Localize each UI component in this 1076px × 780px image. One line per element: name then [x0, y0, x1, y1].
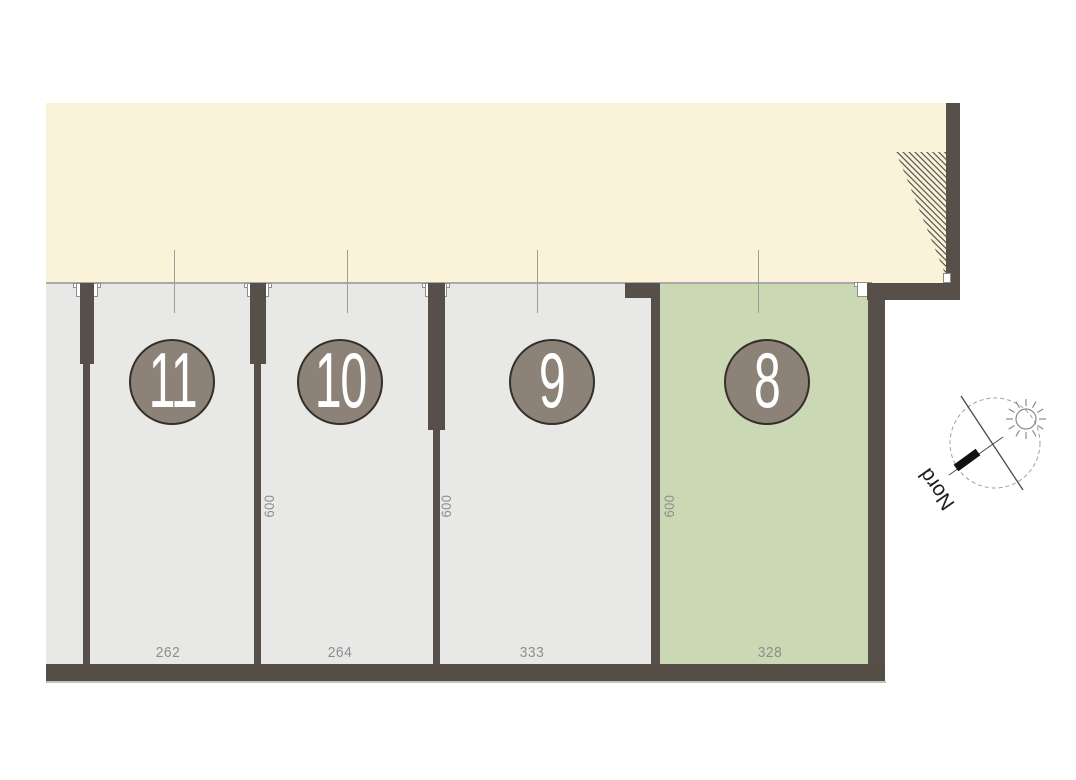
divider-wall-12-11	[83, 364, 90, 664]
divider-wall-11-10	[254, 364, 261, 664]
plot-depth-dimension-9: 600	[439, 486, 453, 526]
plot-number-badge-9[interactable]: 9	[509, 339, 595, 425]
plot-8-right-wall	[868, 299, 885, 664]
corridor-area	[46, 103, 946, 283]
plot-number: 8	[754, 341, 780, 419]
divider-wall-12-11	[80, 283, 94, 364]
plot-number: 9	[539, 341, 565, 419]
sun-icon	[1006, 399, 1046, 439]
north-needle	[956, 452, 978, 468]
divider-wall-10-9	[433, 430, 440, 664]
perimeter-wall-right	[946, 103, 960, 300]
plot-width-dimension-10: 264	[312, 646, 367, 660]
divider-wall-9-8-cap	[625, 283, 660, 298]
plot-number: 11	[148, 341, 196, 419]
wall-joint-marker	[943, 273, 951, 283]
ramp-hatch-area	[890, 148, 950, 280]
divider-wall-9-8	[651, 297, 660, 664]
plot-number-badge-8[interactable]: 8	[724, 339, 810, 425]
perimeter-wall-bottom	[46, 664, 885, 681]
bottom-wall-shadow-line	[46, 681, 886, 683]
plot-width-dimension-8: 328	[742, 646, 797, 660]
site-plan: 11 10 9 8 262 264 333 328 600 600 600	[0, 0, 1076, 780]
north-label: Nord	[915, 464, 960, 514]
plot-depth-dimension-8: 600	[662, 486, 676, 526]
hatch-triangle	[896, 152, 946, 276]
plot-number-badge-10[interactable]: 10	[297, 339, 383, 425]
plot-area-partial	[46, 284, 80, 664]
plot-width-dimension-9: 333	[504, 646, 559, 660]
plot-depth-dimension-10: 600	[262, 486, 276, 526]
meridian-line	[961, 396, 1023, 490]
divider-wall-10-9	[428, 283, 445, 430]
north-indicator: Nord	[905, 385, 1065, 535]
plot-number: 10	[314, 341, 365, 419]
plot-number-badge-11[interactable]: 11	[129, 339, 215, 425]
plot-width-dimension-11: 262	[140, 646, 195, 660]
divider-wall-11-10	[250, 283, 266, 364]
